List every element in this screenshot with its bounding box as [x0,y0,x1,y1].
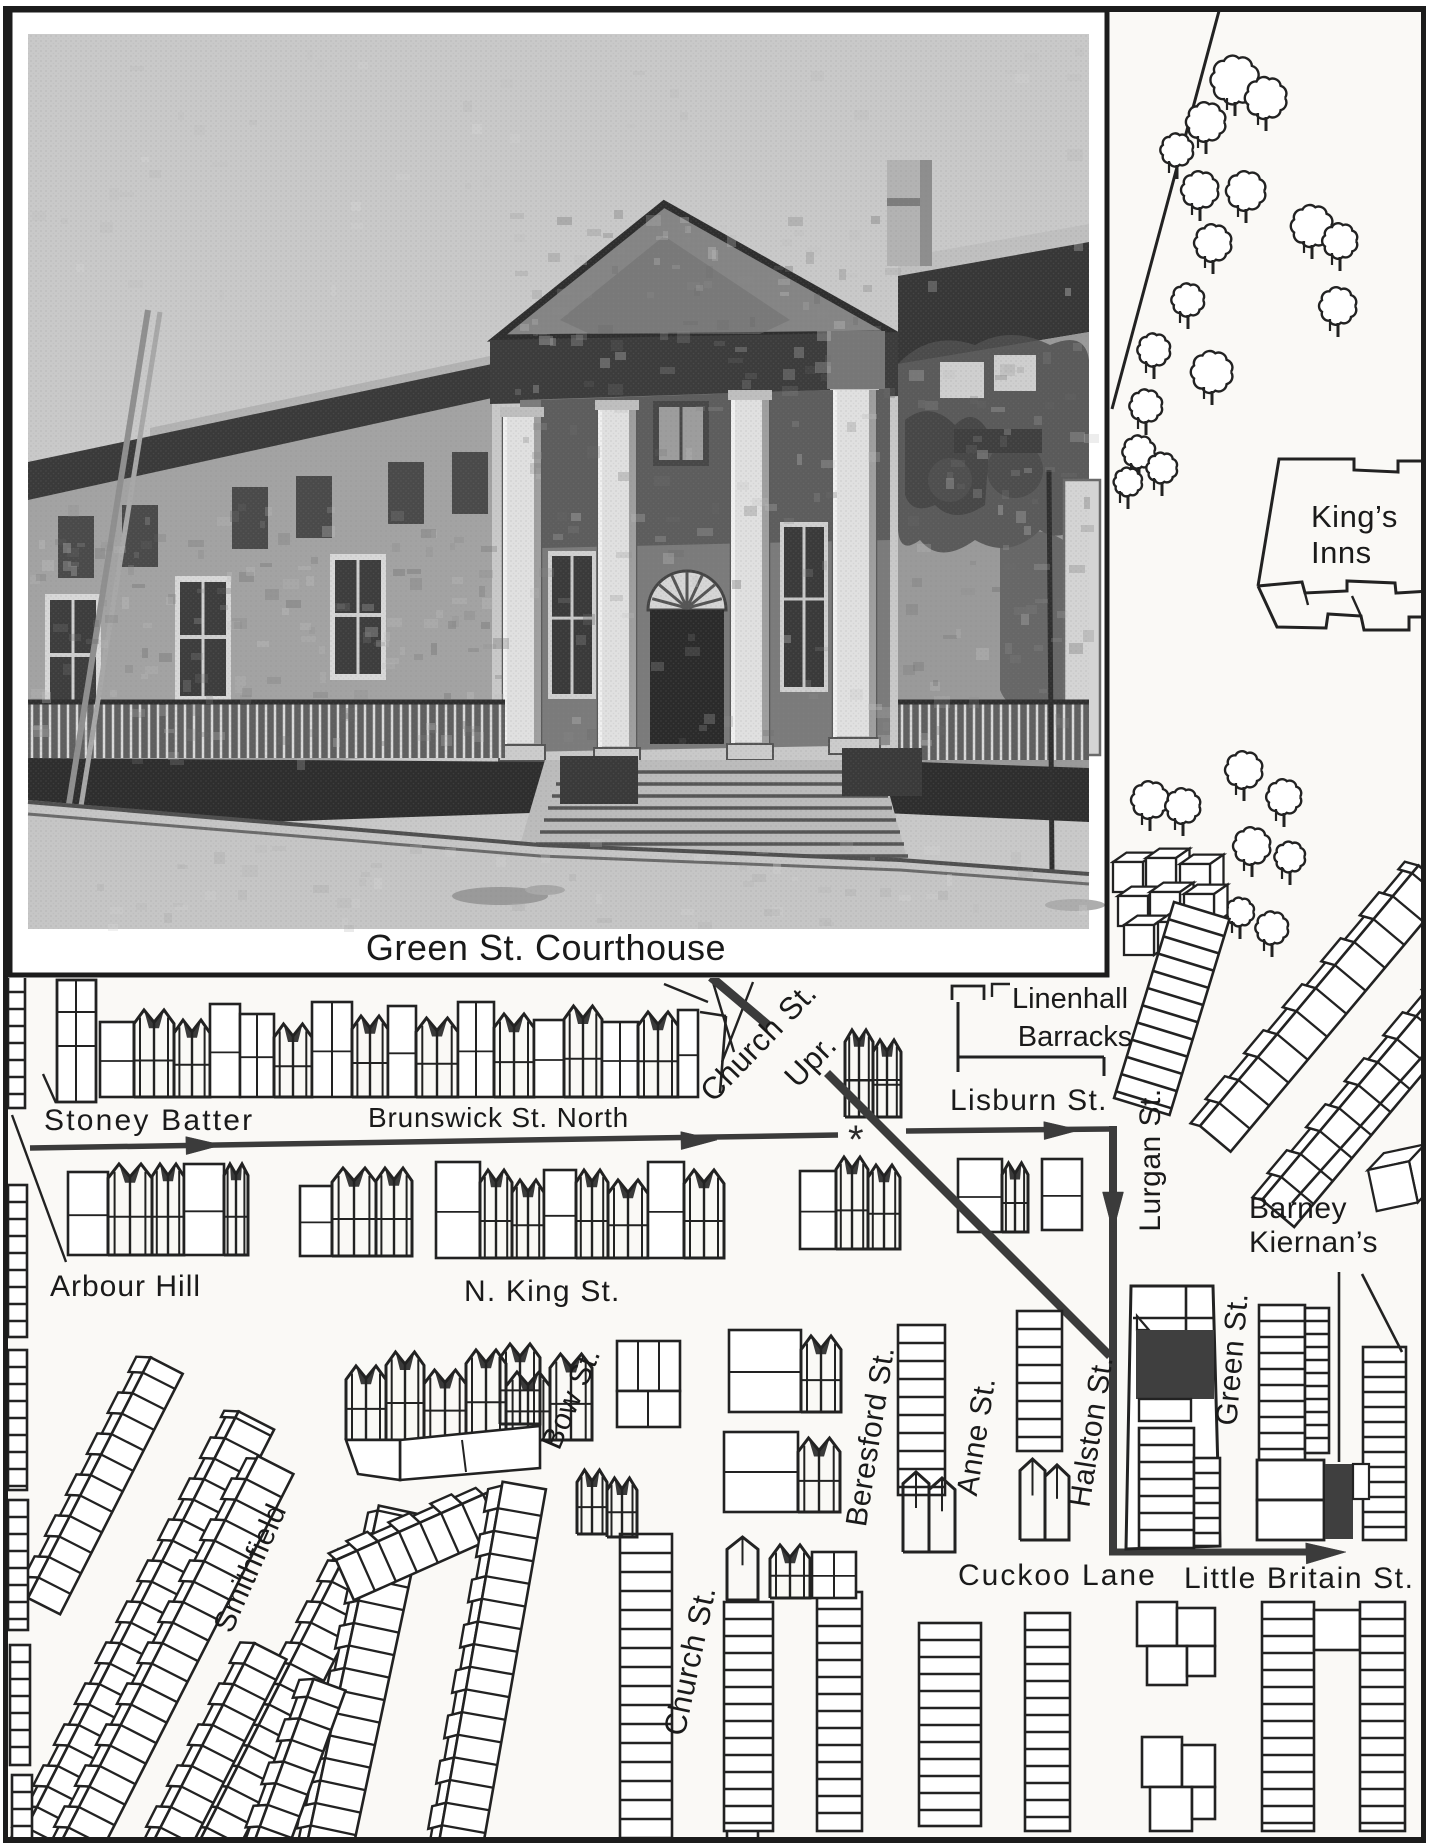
svg-text:Lurgan St.: Lurgan St. [1134,1088,1167,1231]
svg-text:Cuckoo Lane: Cuckoo Lane [958,1559,1157,1592]
svg-text:Inns: Inns [1311,535,1372,570]
svg-text:King’s: King’s [1311,499,1398,534]
svg-text:Stoney Batter: Stoney Batter [44,1104,254,1137]
svg-text:Barracks: Barracks [1018,1021,1132,1053]
svg-text:N. King St.: N. King St. [464,1275,621,1308]
svg-text:Arbour Hill: Arbour Hill [50,1270,201,1303]
svg-text:Linenhall: Linenhall [1012,983,1128,1015]
svg-text:*: * [848,1118,864,1162]
svg-text:Green St. Courthouse: Green St. Courthouse [366,927,726,968]
svg-text:Brunswick St. North: Brunswick St. North [368,1102,629,1133]
svg-text:Barney: Barney [1249,1192,1347,1225]
svg-text:Lisburn St.: Lisburn St. [950,1084,1108,1117]
svg-text:Little Britain St.: Little Britain St. [1184,1562,1415,1595]
svg-text:Kiernan’s: Kiernan’s [1249,1226,1378,1259]
